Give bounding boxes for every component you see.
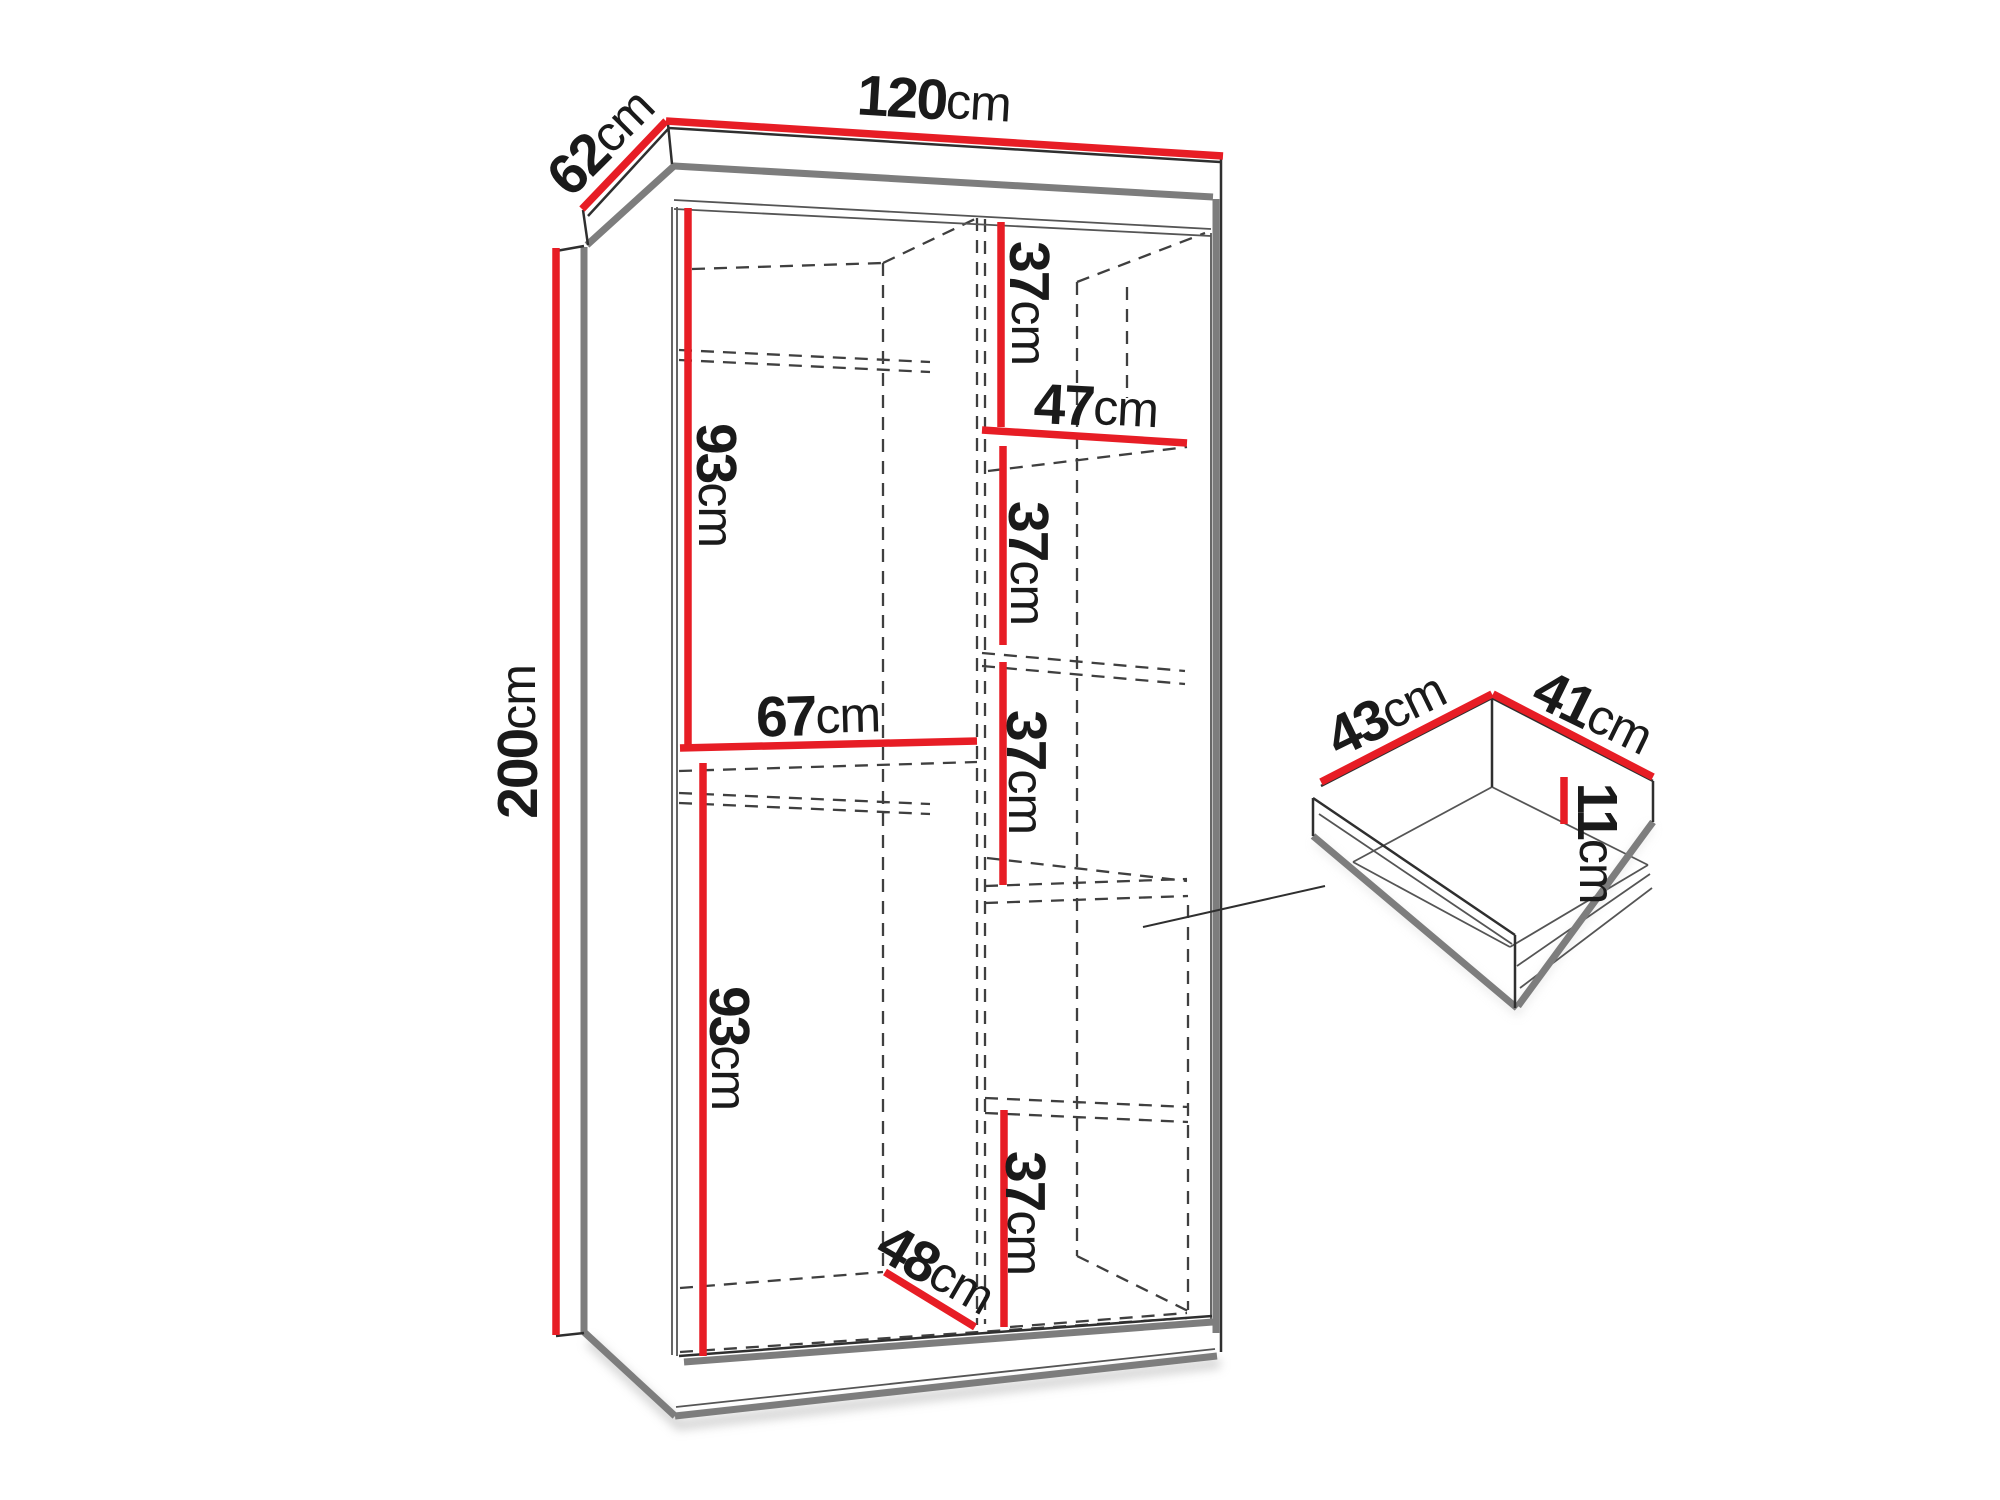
diagram-canvas: 62cm 120cm 200cm 93cm 67cm 93cm 48cm 37c… xyxy=(0,0,2000,1500)
dim-label-drawer-41: 41cm xyxy=(1523,657,1663,769)
dim-label-shelf-47: 47cm xyxy=(1032,372,1159,442)
drawer-leader-line xyxy=(1143,886,1325,927)
dim-label-37-1: 37cm xyxy=(997,241,1061,365)
dim-label-drawer-11: 11cm xyxy=(1565,783,1629,904)
dim-label-depth-48: 48cm xyxy=(866,1211,1005,1328)
diagram-page: 62cm 120cm 200cm 93cm 67cm 93cm 48cm 37c… xyxy=(0,0,2000,1500)
dimension-lines xyxy=(556,121,1223,1356)
dim-label-shelf-67: 67cm xyxy=(755,682,881,749)
dim-label-lower-93: 93cm xyxy=(697,986,761,1110)
dim-label-37-2: 37cm xyxy=(996,501,1060,625)
dim-label-width-120: 120cm xyxy=(855,63,1012,136)
dim-label-37-3: 37cm xyxy=(994,710,1058,834)
dim-label-height-200: 200cm xyxy=(486,665,550,819)
dim-label-upper-93: 93cm xyxy=(684,423,748,547)
dim-label-37-4: 37cm xyxy=(993,1151,1057,1275)
